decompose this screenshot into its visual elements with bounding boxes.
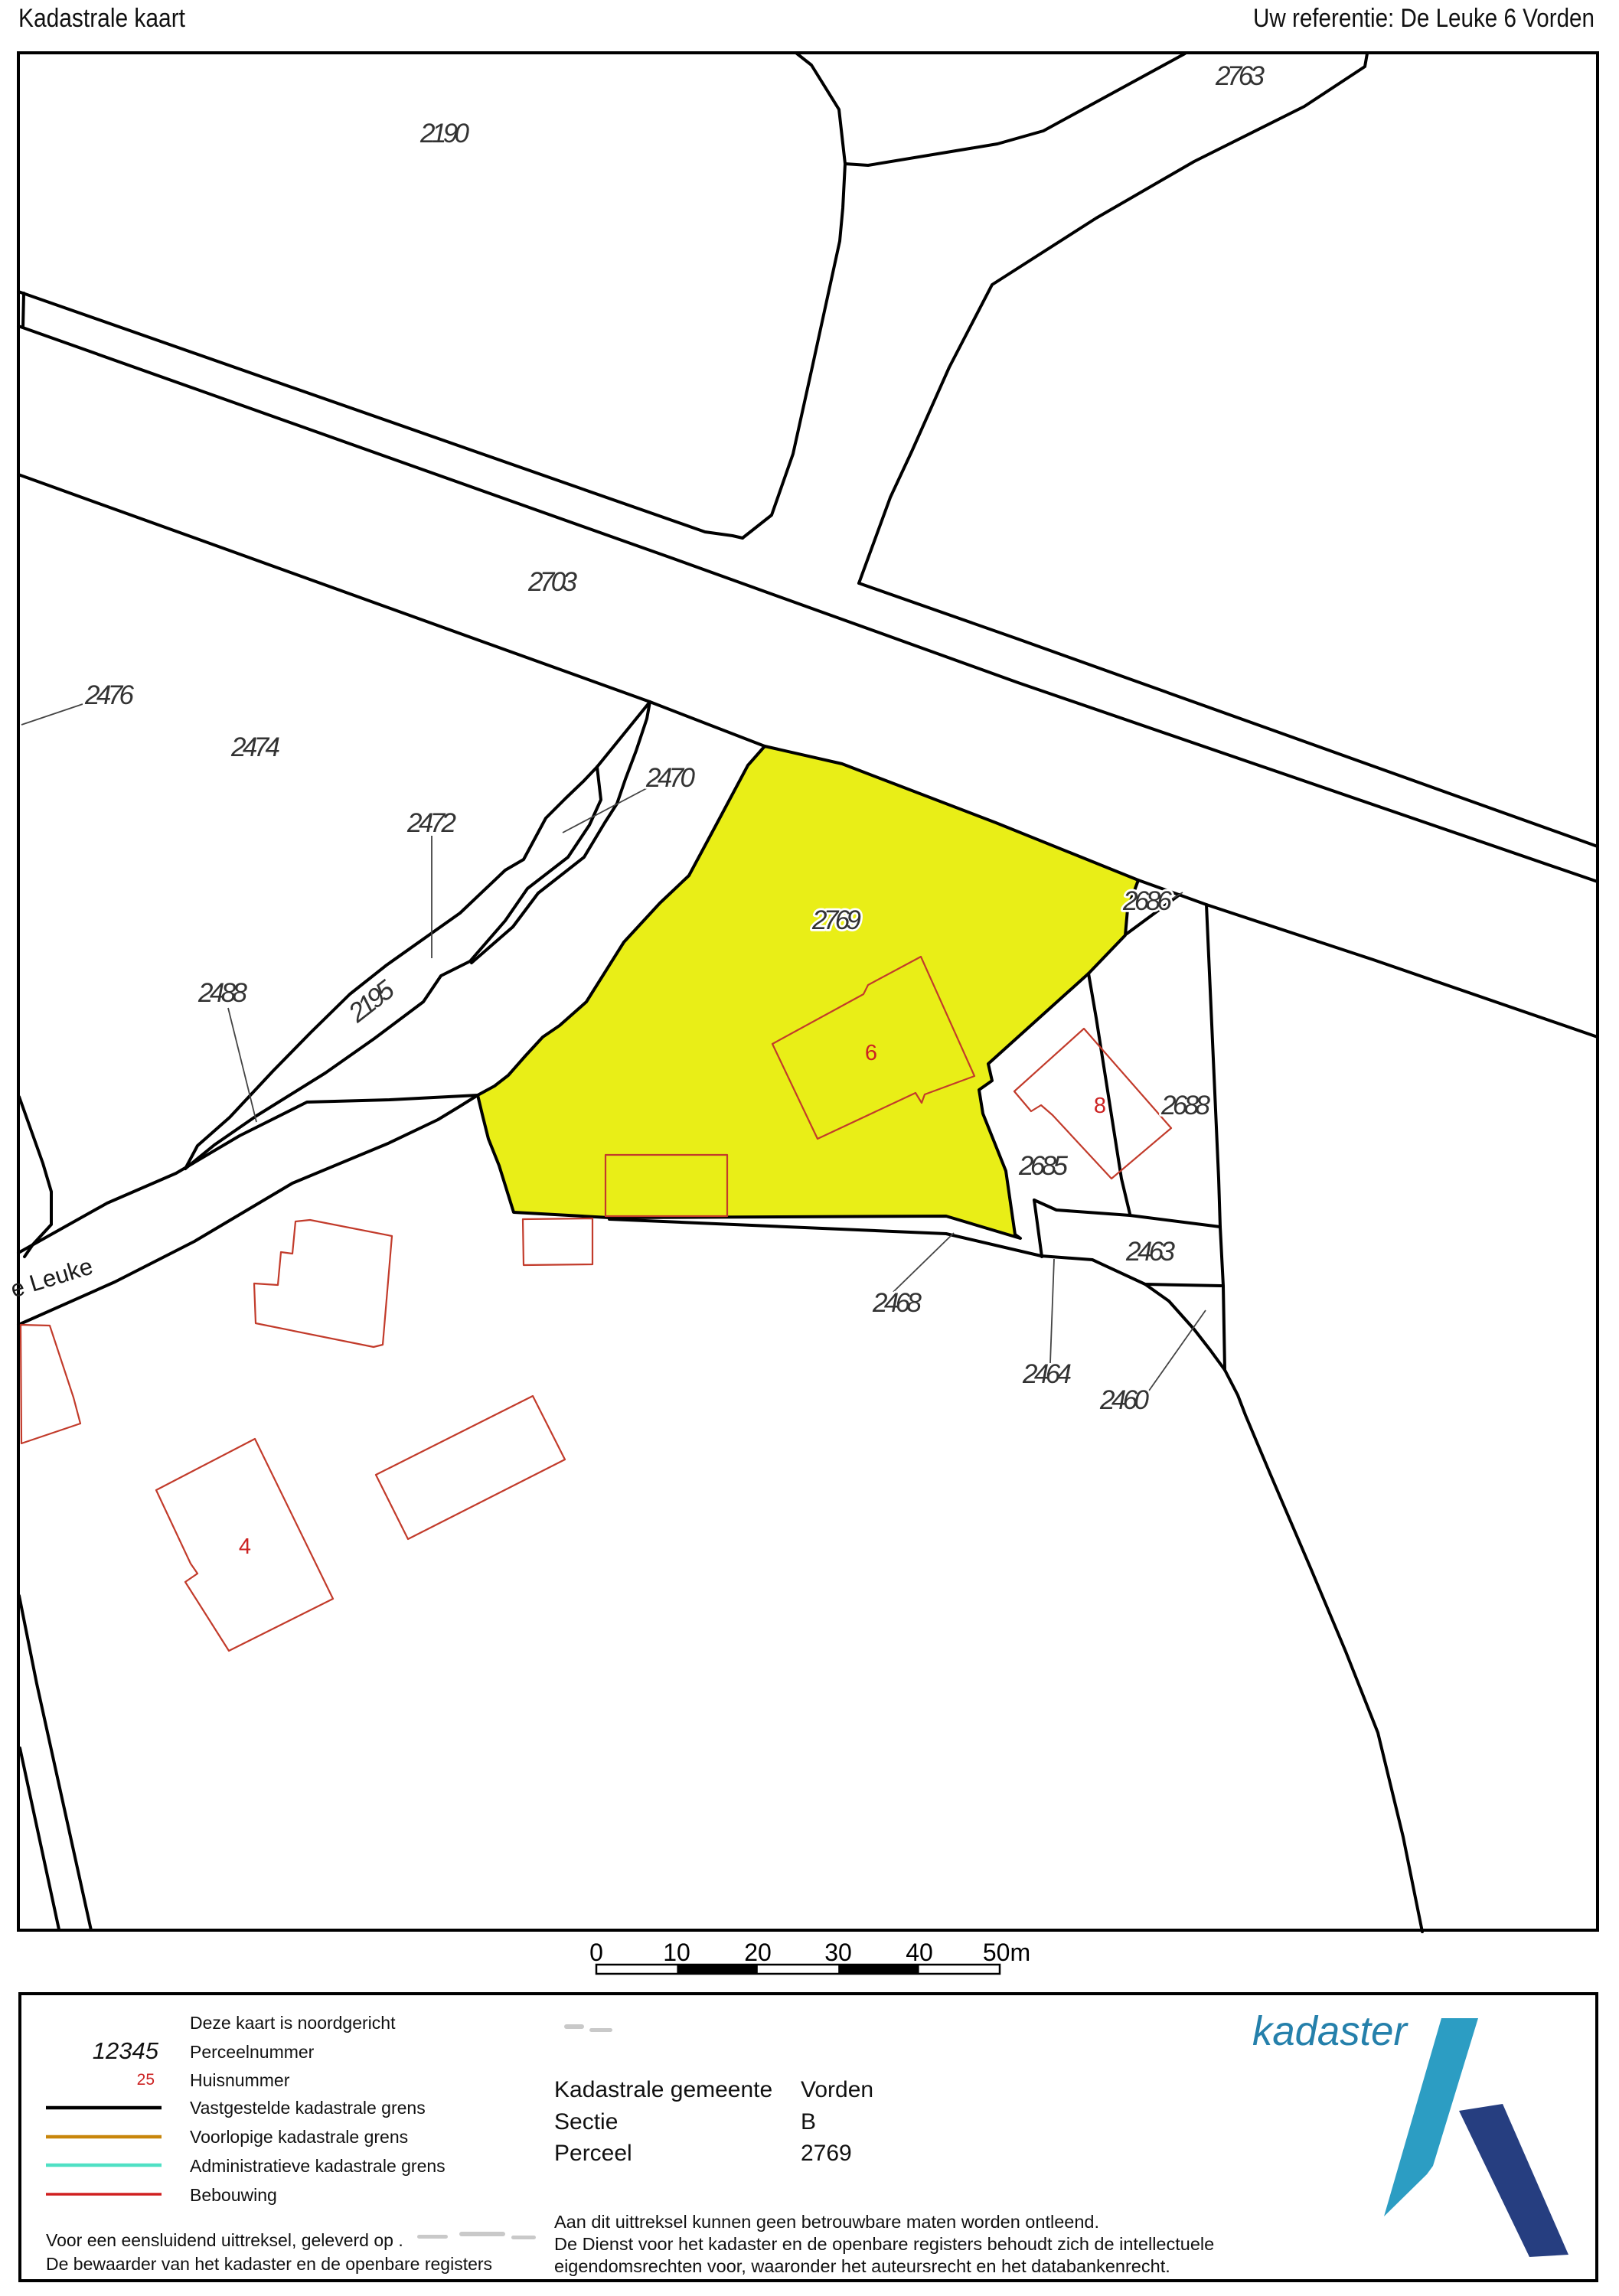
svg-text:Administratieve kadastrale gre: Administratieve kadastrale grens: [190, 2156, 446, 2176]
svg-text:2703: 2703: [527, 567, 578, 597]
svg-text:10: 10: [663, 1939, 690, 1966]
svg-text:2769: 2769: [801, 2141, 852, 2166]
svg-text:2460: 2460: [1099, 1385, 1150, 1415]
svg-text:2476: 2476: [84, 680, 135, 710]
svg-text:8: 8: [1094, 1094, 1106, 1118]
svg-text:Uw referentie: De Leuke 6 Vord: Uw referentie: De Leuke 6 Vorden: [1253, 4, 1595, 33]
svg-text:Kadastrale kaart: Kadastrale kaart: [18, 4, 185, 33]
svg-text:2769: 2769: [811, 905, 861, 935]
svg-text:25: 25: [137, 2071, 155, 2089]
svg-text:Vorden: Vorden: [801, 2077, 873, 2102]
svg-text:4: 4: [239, 1534, 251, 1559]
svg-text:2685: 2685: [1018, 1151, 1069, 1181]
svg-text:12345: 12345: [93, 2037, 159, 2064]
svg-text:De bewaarder van het kadaster: De bewaarder van het kadaster en de open…: [46, 2254, 492, 2274]
svg-text:Vastgestelde kadastrale grens: Vastgestelde kadastrale grens: [190, 2098, 426, 2118]
svg-text:2686: 2686: [1122, 886, 1173, 916]
svg-text:Deze kaart is noordgericht: Deze kaart is noordgericht: [190, 2013, 396, 2033]
svg-text:2763: 2763: [1215, 61, 1265, 91]
svg-text:20: 20: [744, 1939, 772, 1966]
svg-text:Voorlopige kadastrale grens: Voorlopige kadastrale grens: [190, 2127, 408, 2147]
svg-text:Kadastrale gemeente: Kadastrale gemeente: [554, 2077, 772, 2102]
svg-text:Aan dit uittreksel kunnen geen: Aan dit uittreksel kunnen geen betrouwba…: [554, 2212, 1099, 2232]
svg-text:2688: 2688: [1160, 1091, 1211, 1120]
svg-text:2463: 2463: [1125, 1237, 1176, 1267]
svg-text:Bebouwing: Bebouwing: [190, 2185, 277, 2205]
svg-text:0: 0: [589, 1939, 603, 1966]
svg-text:eigendomsrechten voor, waarond: eigendomsrechten voor, waaronder het aut…: [554, 2256, 1170, 2276]
svg-text:Voor een eensluidend uittrekse: Voor een eensluidend uittreksel, gelever…: [46, 2230, 403, 2250]
svg-text:2470: 2470: [645, 763, 696, 793]
svg-text:6: 6: [865, 1041, 877, 1065]
svg-text:2464: 2464: [1022, 1359, 1072, 1389]
svg-text:kadaster: kadaster: [1252, 2008, 1408, 2054]
svg-text:De Dienst voor het kadaster en: De Dienst voor het kadaster en de openba…: [554, 2234, 1214, 2254]
svg-text:2190: 2190: [419, 119, 470, 148]
svg-text:2488: 2488: [197, 978, 248, 1008]
svg-text:40: 40: [906, 1939, 933, 1966]
svg-text:B: B: [801, 2109, 816, 2135]
svg-text:Huisnummer: Huisnummer: [190, 2070, 290, 2090]
svg-text:Perceelnummer: Perceelnummer: [190, 2042, 315, 2062]
svg-text:Sectie: Sectie: [554, 2109, 618, 2135]
svg-text:50m: 50m: [983, 1939, 1030, 1966]
svg-text:2472: 2472: [406, 808, 456, 838]
svg-text:30: 30: [824, 1939, 852, 1966]
svg-text:2468: 2468: [872, 1288, 922, 1318]
svg-text:Perceel: Perceel: [554, 2141, 632, 2166]
svg-text:2474: 2474: [230, 732, 280, 762]
